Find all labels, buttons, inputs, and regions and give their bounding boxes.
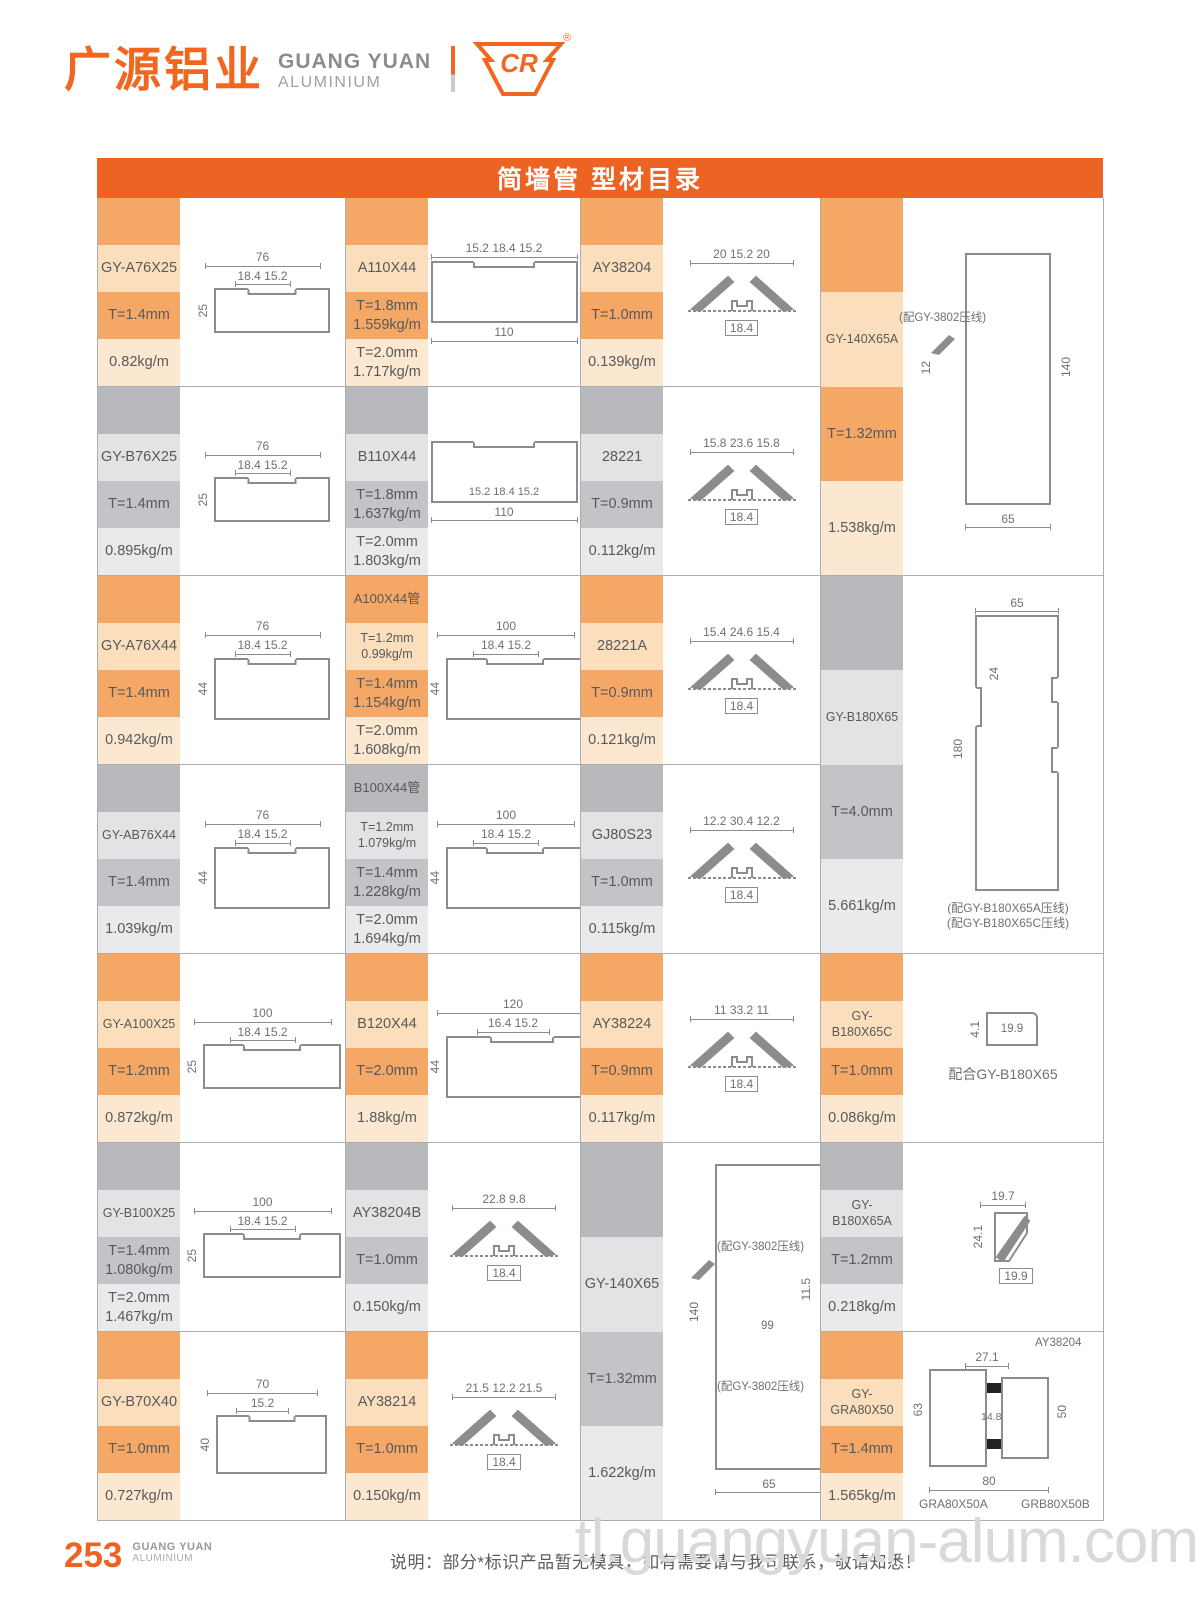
tube-drawing: 10018.4 15.244 (428, 809, 581, 909)
tube-profile-shape (203, 1233, 341, 1278)
product-spec-secondary: T=2.0mm 1.694kg/m (346, 906, 428, 953)
dimension-label: 15.4 24.6 15.4 (690, 626, 794, 642)
caption: 配合GY-B180X65 (948, 1065, 1057, 1083)
product-card-28221A: 28221AT=0.9mm0.121kg/m15.4 24.6 15.418.4 (581, 576, 821, 765)
profile-notch (247, 847, 296, 854)
product-spec-primary: T=1.4mm (98, 670, 180, 717)
product-name: AY38204 (581, 245, 663, 292)
dimension-label: 80 (929, 1475, 1049, 1491)
product-spec-secondary: 0.942kg/m (98, 717, 180, 764)
profile-outline-icon (684, 834, 800, 884)
connector (987, 1439, 1001, 1449)
product-spec-secondary: 0.086kg/m (821, 1095, 903, 1142)
product-header-block (581, 198, 663, 245)
tube-drawing: 7015.240 (198, 1378, 327, 1475)
product-name: AY38224 (581, 1001, 663, 1048)
profile-drawing-area: 10018.4 15.244 (428, 765, 581, 953)
product-spec-primary: T=1.0mm (346, 1426, 428, 1473)
product-header-block: B100X44管 (346, 765, 428, 812)
dimension-label: 65 (715, 1478, 821, 1494)
dimension-label: 44 (428, 871, 442, 884)
dimension-label: 100 (437, 620, 575, 636)
dimension-label: 120 (437, 998, 581, 1014)
product-card-A100X44管: A100X44管T=1.2mm 0.99kg/mT=1.4mm 1.154kg/… (346, 576, 581, 765)
profile-drawing-area: 10018.4 15.244 (428, 576, 581, 764)
tube-row: 25 (185, 1044, 341, 1089)
product-spec-secondary: 0.117kg/m (581, 1095, 663, 1142)
dimension-label: 100 (437, 809, 575, 825)
dimension-label: 18.4 (725, 509, 758, 525)
product-spec-primary: T=1.4mm 1.228kg/m (346, 859, 428, 906)
dimension-label: 18.4 15.2 (230, 1215, 296, 1231)
profile-notch (975, 687, 982, 727)
tube-profile-shape (965, 253, 1051, 505)
dimension-label: 63 (911, 1403, 925, 1416)
product-name: GY-140X65 (581, 1237, 663, 1331)
product-header-block (581, 765, 663, 812)
product-name: B120X44 (346, 1001, 428, 1048)
tube-drawing: 10018.4 15.225 (185, 1196, 341, 1279)
dimension-label: 18.4 (725, 887, 758, 903)
product-card-GY-B76X25: GY-B76X25T=1.4mm0.895kg/m7618.4 15.225 (98, 387, 346, 576)
dimension-label: 18.4 (487, 1454, 520, 1470)
dimension-label: 12.2 30.4 12.2 (690, 815, 794, 831)
dimension-label: 24 (987, 667, 1001, 680)
dimension-label: 24.1 (971, 1225, 985, 1248)
tube-profile-shape (214, 847, 330, 909)
product-name: T=1.2mm 1.079kg/m (346, 812, 428, 859)
tube-profile-shape (975, 615, 1059, 891)
label-column: GY-A76X25T=1.4mm0.82kg/m (98, 198, 180, 386)
clip-drawing: 21.5 12.2 21.518.4 (446, 1382, 562, 1470)
profile-drawing-area: 19.724.119.9 (903, 1143, 1103, 1331)
clip-drawing: 22.8 9.818.4 (446, 1193, 562, 1281)
catalog-page: 广源铝业 GUANG YUAN ALUMINIUM CR ® 简墙管 型材目录 … (0, 0, 1200, 1616)
label-column: GY-140X65T=1.32mm1.622kg/m (581, 1143, 663, 1520)
profile-drawing-area: 10018.4 15.225 (180, 1143, 345, 1331)
profile-drawing-area: 20 15.2 2018.4 (663, 198, 820, 386)
dimension-label: 40 (198, 1438, 212, 1451)
product-card-GY-GRA80X50: GY-GRA80X50T=1.4mm1.565kg/mAY3820427.163… (821, 1332, 1104, 1521)
product-spec-primary: T=1.4mm (821, 1426, 903, 1473)
dimension-label: 12 (919, 361, 933, 374)
profile-drawing-area: 140(配GY-3802压线)11.599(配GY-3802压线)65 (663, 1143, 821, 1520)
tube-profile-shape (214, 477, 330, 522)
dimension-label: 76 (205, 809, 321, 825)
tube-drawing: 12016.4 15.244 (428, 998, 581, 1098)
dimension-label: 18.4 15.2 (230, 1026, 296, 1042)
label-column: GY-B180X65T=4.0mm5.661kg/m (821, 576, 903, 953)
profile-notch (1051, 677, 1059, 703)
label-column: 28221T=0.9mm0.112kg/m (581, 387, 663, 575)
product-header-block (98, 954, 180, 1001)
product-card-GY-140X65A: GY-140X65AT=1.32mm1.538kg/m14065(配GY-380… (821, 198, 1104, 576)
dimension-label: 140 (1059, 357, 1073, 377)
tube-drawing: 7618.4 15.225 (196, 251, 330, 334)
profile-drawing-area: 15.8 23.6 15.818.4 (663, 387, 820, 575)
product-spec-secondary: 0.150kg/m (346, 1473, 428, 1520)
dimension-label: 140 (687, 1302, 701, 1322)
dimension-label: 11.5 (799, 1278, 813, 1300)
dimension-label: 110 (431, 326, 578, 342)
dimension-label: 19.7 (980, 1190, 1026, 1206)
profile-notch (247, 288, 296, 295)
product-header-block (346, 1143, 428, 1190)
dimension-label: 180 (951, 739, 965, 759)
product-spec-primary: T=1.32mm (821, 387, 903, 481)
dimension-label: 18.4 (487, 1265, 520, 1281)
label-column: GY-B100X25T=1.4mm 1.080kg/mT=2.0mm 1.467… (98, 1143, 180, 1331)
product-header-block (821, 954, 903, 1001)
product-spec-primary: T=1.4mm 1.154kg/m (346, 670, 428, 717)
product-name: GY-140X65A (821, 292, 903, 386)
dimension-label: 4.1 (968, 1021, 982, 1038)
product-spec-primary: T=0.9mm (581, 1048, 663, 1095)
product-header-block (98, 1143, 180, 1190)
profile-outline-icon (929, 331, 959, 357)
label-column: B120X44T=2.0mm1.88kg/m (346, 954, 428, 1142)
annotation: (配GY-3802压线) (717, 1238, 804, 1254)
dimension-label: 44 (428, 682, 442, 695)
product-name: GY-AB76X44 (98, 812, 180, 859)
tube-profile-shape (214, 658, 330, 720)
dimension-label: 18.4 15.2 (235, 459, 291, 475)
product-name: 28221 (581, 434, 663, 481)
tube-row: 25 (185, 1233, 341, 1278)
product-header-block (98, 1332, 180, 1379)
dimension-label: 100 (194, 1196, 332, 1212)
product-name: GY-B180X65C (821, 1001, 903, 1048)
tube-row: 44 (428, 1036, 581, 1098)
dimension-label: 50 (1055, 1405, 1069, 1418)
profile-notch (490, 1036, 554, 1043)
product-spec-primary: T=1.2mm (821, 1237, 903, 1284)
label-column: AY38204BT=1.0mm0.150kg/m (346, 1143, 428, 1331)
label-column: GY-140X65AT=1.32mm1.538kg/m (821, 198, 903, 575)
tube-drawing: 15.2 18.4 15.2110 (431, 441, 578, 522)
clip-drawing: 20 15.2 2018.4 (684, 248, 800, 336)
footer-brand-line2: ALUMINIUM (132, 1553, 212, 1564)
small-profile-row: 24.1 (971, 1209, 1035, 1265)
tube-profile-shape (214, 288, 330, 333)
product-spec-secondary: 0.872kg/m (98, 1095, 180, 1142)
tube-row: 44 (196, 658, 330, 720)
logo-chinese: 广源铝业 (64, 46, 264, 93)
profile-drawing-area: 15.2 18.4 15.2110 (428, 387, 580, 575)
clip-drawing: 11 33.2 1118.4 (684, 1004, 800, 1092)
product-card-B100X44管: B100X44管T=1.2mm 1.079kg/mT=1.4mm 1.228kg… (346, 765, 581, 954)
label-column: GY-A76X44T=1.4mm0.942kg/m (98, 576, 180, 764)
product-spec-secondary: 0.727kg/m (98, 1473, 180, 1520)
cr-logo: CR ® (471, 38, 567, 100)
profile-drawing-area: 6518024(配GY-B180X65A压线) (配GY-B180X65C压线) (903, 576, 1104, 953)
profile-drawing-area: 21.5 12.2 21.518.4 (428, 1332, 580, 1520)
product-spec-secondary: 5.661kg/m (821, 859, 903, 953)
dimension-label: 16.4 15.2 (477, 1017, 550, 1033)
profile-notch (243, 1233, 301, 1240)
product-name: B110X44 (346, 434, 428, 481)
page-number: 253 (64, 1538, 122, 1573)
product-name: GY-B70X40 (98, 1379, 180, 1426)
tube-row (431, 261, 578, 323)
tube-profile-shape (446, 847, 581, 909)
dimension-label: 18.4 (725, 698, 758, 714)
product-spec-primary: T=2.0mm (346, 1048, 428, 1095)
product-name: GY-B180X65A (821, 1190, 903, 1237)
profile-notch (247, 477, 296, 484)
product-spec-secondary: 0.82kg/m (98, 339, 180, 386)
dimension-label: 99 (761, 1320, 774, 1332)
dimension-label: 76 (205, 251, 321, 267)
dimension-label: 18.4 (725, 320, 758, 336)
tube-profile-shape (203, 1044, 341, 1089)
logo-en-line2: ALUMINIUM (278, 73, 431, 92)
profile-outline-icon (684, 645, 800, 695)
tube-profile-shape (446, 658, 581, 720)
product-card-GY-B100X25: GY-B100X25T=1.4mm 1.080kg/mT=2.0mm 1.467… (98, 1143, 346, 1332)
dimension-label: 18.4 15.2 (235, 828, 291, 844)
dimension-label: 18.4 (725, 1076, 758, 1092)
profile-drawing-area: 7618.4 15.244 (180, 576, 345, 764)
product-spec-secondary: 0.115kg/m (581, 906, 663, 953)
annotation: (配GY-3802压线) (899, 309, 986, 325)
catalog-title-bar: 简墙管 型材目录 (97, 158, 1103, 198)
dimension-label: 18.4 15.2 (473, 639, 539, 655)
small-profile-row: 4.119.9 (968, 1012, 1038, 1046)
profile-drawing-area: 10018.4 15.225 (180, 954, 345, 1142)
tube-row: 25 (196, 477, 330, 522)
tube-row: 44 (196, 847, 330, 909)
product-spec-secondary: 1.039kg/m (98, 906, 180, 953)
dimension-label: 76 (205, 620, 321, 636)
product-spec-primary: T=1.8mm 1.559kg/m (346, 292, 428, 339)
tall-profile-drawing: 6518024(配GY-B180X65A压线) (配GY-B180X65C压线) (903, 589, 1104, 941)
tube-profile-shape (431, 261, 578, 323)
product-name: AY38214 (346, 1379, 428, 1426)
tube-row: 44 (428, 847, 581, 909)
profile-notch (486, 658, 544, 665)
header-divider (451, 46, 455, 92)
product-card-GY-AB76X44: GY-AB76X44T=1.4mm1.039kg/m7618.4 15.244 (98, 765, 346, 954)
product-spec-primary: T=0.9mm (581, 481, 663, 528)
assembly-drawing: AY3820427.16314.85080GRA80X50AGRB80X50B (903, 1335, 1104, 1517)
product-grid: GY-A76X25T=1.4mm0.82kg/m7618.4 15.225 A1… (97, 198, 1103, 1521)
product-spec-primary: T=1.0mm (581, 292, 663, 339)
label-column: GY-B180X65CT=1.0mm0.086kg/m (821, 954, 903, 1142)
product-header-block (581, 387, 663, 434)
product-header-block (98, 576, 180, 623)
dimension-label: 65 (975, 597, 1059, 613)
dimension-label: 25 (196, 304, 210, 317)
tube-drawing: 10018.4 15.225 (185, 1007, 341, 1090)
dimension-label: 25 (185, 1249, 199, 1262)
profile-outline-icon (446, 1401, 562, 1451)
product-card-GY-B180X65A: GY-B180X65AT=1.2mm0.218kg/m19.724.119.9 (821, 1143, 1104, 1332)
product-name: GY-A100X25 (98, 1001, 180, 1048)
tube-profile-shape (929, 1369, 987, 1467)
label-column: AY38224T=0.9mm0.117kg/m (581, 954, 663, 1142)
profile-outline-icon (446, 1212, 562, 1262)
product-card-GY-B70X40: GY-B70X40T=1.0mm0.727kg/m7015.240 (98, 1332, 346, 1521)
product-spec-primary: T=1.0mm (821, 1048, 903, 1095)
product-spec-secondary: T=2.0mm 1.467kg/m (98, 1284, 180, 1331)
tube-profile-shape (446, 1036, 581, 1098)
tube-profile-shape (715, 1164, 821, 1470)
dimension-label: 110 (431, 506, 578, 522)
product-header-block (98, 765, 180, 812)
tube-profile-shape (1001, 1377, 1049, 1459)
profile-notch (486, 847, 544, 854)
product-card-GY-A76X25: GY-A76X25T=1.4mm0.82kg/m7618.4 15.225 (98, 198, 346, 387)
dimension-label: 18.4 15.2 (235, 270, 291, 286)
profile-drawing-area: 7618.4 15.225 (180, 198, 345, 386)
product-card-GY-A100X25: GY-A100X25T=1.2mm0.872kg/m10018.4 15.225 (98, 954, 346, 1143)
profile-drawing-area: 11 33.2 1118.4 (663, 954, 820, 1142)
product-spec-secondary: 0.121kg/m (581, 717, 663, 764)
label-column: B100X44管T=1.2mm 1.079kg/mT=1.4mm 1.228kg… (346, 765, 428, 953)
label-column: AY38204T=1.0mm0.139kg/m (581, 198, 663, 386)
product-name: A110X44 (346, 245, 428, 292)
dimension-label: 19.9 (1001, 1023, 1023, 1035)
product-header-block (98, 387, 180, 434)
dimension-label: 25 (185, 1060, 199, 1073)
product-header-block (346, 1332, 428, 1379)
dimension-label: 22.8 9.8 (452, 1193, 556, 1209)
product-name: AY38204B (346, 1190, 428, 1237)
label-column: B110X44T=1.8mm 1.637kg/mT=2.0mm 1.803kg/… (346, 387, 428, 575)
product-spec-secondary: 0.112kg/m (581, 528, 663, 575)
product-card-AY38224: AY38224T=0.9mm0.117kg/m11 33.2 1118.4 (581, 954, 821, 1143)
tube-drawing: 10018.4 15.244 (428, 620, 581, 720)
profile-drawing-area: AY3820427.16314.85080GRA80X50AGRB80X50B (903, 1332, 1104, 1520)
product-card-B110X44: B110X44T=1.8mm 1.637kg/mT=2.0mm 1.803kg/… (346, 387, 581, 576)
tube-drawing: 7618.4 15.244 (196, 809, 330, 909)
logo-english: GUANG YUAN ALUMINIUM (278, 50, 431, 92)
profile-drawing-area: 7015.240 (180, 1332, 345, 1520)
label-column: GY-B70X40T=1.0mm0.727kg/m (98, 1332, 180, 1520)
product-spec-primary: T=1.8mm 1.637kg/m (346, 481, 428, 528)
dimension-label: 15.8 23.6 15.8 (690, 437, 794, 453)
product-name: GJ80S23 (581, 812, 663, 859)
product-header-block (821, 1143, 903, 1190)
dimension-label: 21.5 12.2 21.5 (452, 1382, 556, 1398)
product-spec-secondary: 1.538kg/m (821, 481, 903, 575)
product-name: GY-A76X44 (98, 623, 180, 670)
label-column: GY-B180X65AT=1.2mm0.218kg/m (821, 1143, 903, 1331)
caption: (配GY-B180X65A压线) (配GY-B180X65C压线) (913, 901, 1103, 932)
label-column: A110X44T=1.8mm 1.559kg/mT=2.0mm 1.717kg/… (346, 198, 428, 386)
product-name: GY-B100X25 (98, 1190, 180, 1237)
product-header-block (346, 198, 428, 245)
profile-drawing-area: 7618.4 15.225 (180, 387, 345, 575)
tube-row: 40 (198, 1415, 327, 1474)
dimension-label: 44 (196, 682, 210, 695)
product-header-block (346, 387, 428, 434)
dimension-label: 15.2 18.4 15.2 (469, 486, 539, 498)
product-card-B120X44: B120X44T=2.0mm1.88kg/m12016.4 15.244 (346, 954, 581, 1143)
product-header-block (581, 954, 663, 1001)
small-profile-drawing: 19.724.119.9 (971, 1190, 1035, 1284)
product-name: GY-GRA80X50 (821, 1379, 903, 1426)
product-spec-secondary: 0.218kg/m (821, 1284, 903, 1331)
callout-label: AY38204 (1035, 1337, 1081, 1349)
dimension-label: 25 (196, 493, 210, 506)
product-spec-primary: T=1.4mm 1.080kg/m (98, 1237, 180, 1284)
product-spec-primary: T=1.32mm (581, 1332, 663, 1426)
profile-notch (473, 441, 535, 448)
clip-drawing: 12.2 30.4 12.218.4 (684, 815, 800, 903)
dimension-label: 44 (196, 871, 210, 884)
product-header-block (821, 576, 903, 670)
tall-profile-drawing: 140(配GY-3802压线)11.599(配GY-3802压线)65 (663, 1152, 821, 1512)
label-column: GY-B76X25T=1.4mm0.895kg/m (98, 387, 180, 575)
label-column: GJ80S23T=1.0mm0.115kg/m (581, 765, 663, 953)
product-spec-secondary: 0.150kg/m (346, 1284, 428, 1331)
product-spec-secondary: T=2.0mm 1.608kg/m (346, 717, 428, 764)
registered-mark: ® (563, 32, 571, 44)
product-name: GY-B180X65 (821, 670, 903, 764)
product-header-block (581, 576, 663, 623)
tube-profile-shape: 15.2 18.4 15.2 (431, 441, 578, 503)
product-spec-primary: T=1.4mm (98, 292, 180, 339)
product-spec-secondary: 0.139kg/m (581, 339, 663, 386)
product-spec-primary: T=1.0mm (98, 1426, 180, 1473)
dimension-label: 70 (207, 1378, 318, 1394)
tube-profile-shape: 19.9 (986, 1012, 1038, 1046)
profile-drawing-area: 22.8 9.818.4 (428, 1143, 580, 1331)
dimension-label: 11 33.2 11 (690, 1004, 794, 1020)
product-card-AY38214: AY38214T=1.0mm0.150kg/m21.5 12.2 21.518.… (346, 1332, 581, 1521)
label-column: A100X44管T=1.2mm 0.99kg/mT=1.4mm 1.154kg/… (346, 576, 428, 764)
logo-en-line1: GUANG YUAN (278, 50, 431, 73)
dimension-label: 27.1 (965, 1351, 1009, 1367)
tall-profile-drawing: 14065(配GY-3802压线)12 (903, 227, 1103, 547)
product-spec-primary: T=0.9mm (581, 670, 663, 717)
profile-notch (473, 261, 535, 268)
small-profile-drawing: 4.119.9配合GY-B180X65 (948, 1012, 1057, 1083)
label-column: AY38214T=1.0mm0.150kg/m (346, 1332, 428, 1520)
label-column: GY-A100X25T=1.2mm0.872kg/m (98, 954, 180, 1142)
product-header-block: A100X44管 (346, 576, 428, 623)
dimension-label: 14.8 (981, 1411, 1001, 1423)
label-column: 28221AT=0.9mm0.121kg/m (581, 576, 663, 764)
profile-drawing-area: 12016.4 15.244 (428, 954, 581, 1142)
cr-logo-text: CR (500, 48, 538, 78)
footer-brand-line1: GUANG YUAN (132, 1541, 212, 1553)
dimension-label: 20 15.2 20 (690, 248, 794, 264)
product-name: T=1.2mm 0.99kg/m (346, 623, 428, 670)
product-spec-primary: T=1.4mm (98, 481, 180, 528)
profile-drawing-area: 7618.4 15.244 (180, 765, 345, 953)
profile-outline-icon (989, 1209, 1035, 1265)
product-spec-primary: T=4.0mm (821, 765, 903, 859)
dimension-label: 18.4 15.2 (235, 639, 291, 655)
profile-outline-icon (684, 267, 800, 317)
product-name: GY-A76X25 (98, 245, 180, 292)
product-spec-primary: T=1.2mm (98, 1048, 180, 1095)
product-card-GJ80S23: GJ80S23T=1.0mm0.115kg/m12.2 30.4 12.218.… (581, 765, 821, 954)
dimension-label: 65 (965, 513, 1051, 529)
product-card-GY-A76X44: GY-A76X44T=1.4mm0.942kg/m7618.4 15.244 (98, 576, 346, 765)
product-card-GY-140X65: GY-140X65T=1.32mm1.622kg/m140(配GY-3802压线… (581, 1143, 821, 1521)
product-card-GY-B180X65: GY-B180X65T=4.0mm5.661kg/m6518024(配GY-B1… (821, 576, 1104, 954)
page-number-block: 253 GUANG YUAN ALUMINIUM (64, 1538, 212, 1573)
product-name: 28221A (581, 623, 663, 670)
profile-outline-icon (689, 1256, 719, 1282)
dimension-label: 19.9 (999, 1268, 1032, 1284)
profile-notch (243, 1044, 301, 1051)
product-spec-secondary: T=2.0mm 1.803kg/m (346, 528, 428, 575)
